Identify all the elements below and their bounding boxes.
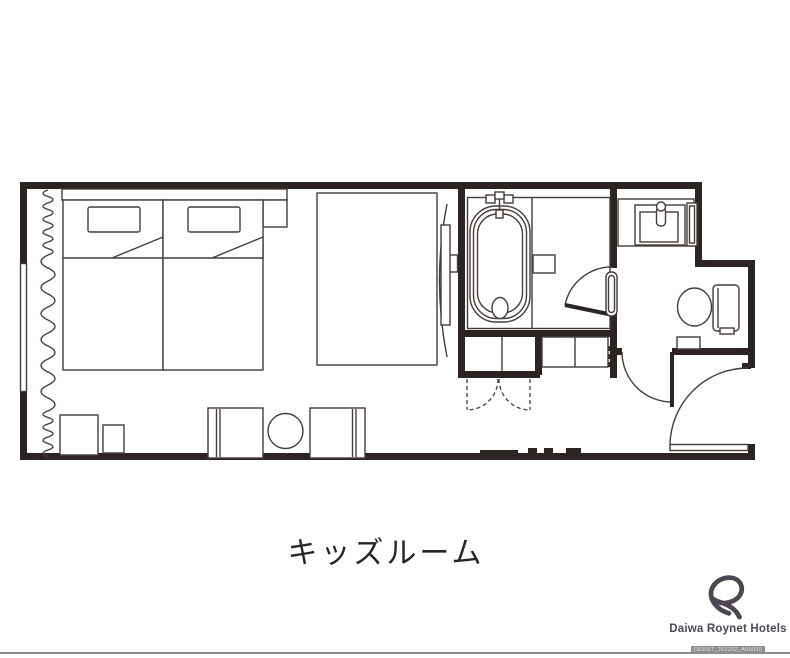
tub-drain [492,298,508,319]
bottom-rule [0,652,790,654]
kids-bed [317,193,437,365]
pillow-icon [88,207,140,232]
pillow-icon [188,207,240,232]
lounge-furniture [60,408,365,458]
luggage-rack [60,415,98,455]
step-box [677,337,700,349]
washroom [603,199,751,407]
bed-area [62,189,437,370]
chair-right [310,408,365,458]
sink-faucet-icon [657,202,666,211]
entrance-door [670,368,748,451]
vanity-sink [635,202,685,245]
headboard [62,189,287,200]
bath-shelf [533,255,555,273]
round-table [268,414,303,449]
floor-plan-page: キッズルーム Daiwa Roynet Hotels DRHST_202202_… [0,0,790,658]
bathroom [468,192,618,329]
toilet [678,285,740,334]
grab-bar [606,272,617,316]
curtain-icon [41,190,55,457]
closet-doors-dashed [467,379,530,410]
brand-block: Daiwa Roynet Hotels DRHST_202202_A00030 [668,574,788,654]
stool [103,425,124,453]
luggage-counter [542,337,608,367]
chair-left [208,408,263,458]
bed-2 [163,200,263,370]
brand-logo-icon [699,574,757,620]
window [21,264,27,392]
bathtub [470,206,530,322]
mirror [687,203,697,246]
washroom-door [622,352,672,407]
room-title: キッズルーム [0,528,772,572]
nightstand [263,200,287,227]
brand-logo-text: Daiwa Roynet Hotels [669,623,787,635]
tv-panel [440,204,458,357]
bed-1 [63,200,163,370]
